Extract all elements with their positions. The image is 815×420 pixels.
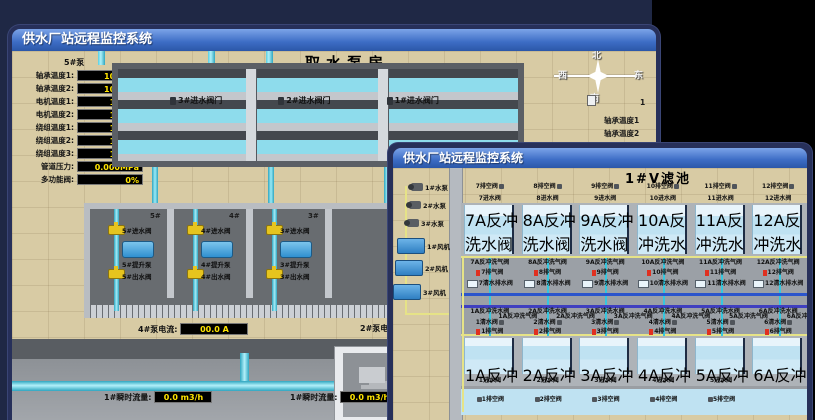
valve-label-text: 7排气阀: [481, 269, 503, 276]
filter-cell[interactable]: 8A反冲洗水阀: [519, 205, 577, 254]
blower-icon: [393, 284, 421, 300]
valve-label-text: 9进水阀: [594, 195, 616, 202]
bottom-filter-tanks: 1A反冲洗水阀 2A反冲洗水阀 3A反冲洗水阀 4A反冲洗水阀 5A反冲洗水阀 …: [461, 338, 807, 374]
flow-label: 1#瞬时流量:: [104, 392, 151, 403]
drain-water-valve[interactable]: 12清水排水阀: [749, 278, 807, 288]
tank-divider: [246, 69, 256, 161]
inlet-gate-valve[interactable]: 2#进水阀门: [278, 95, 330, 106]
filter-cell[interactable]: 11A反冲洗水阀: [692, 205, 750, 254]
alarm-flag-icon: [534, 270, 538, 276]
backwash-air-valve[interactable]: 10A反冲洗气阀: [634, 257, 692, 266]
valve-label-text: 5排空阀: [713, 396, 735, 403]
alarm-flag-icon: [476, 329, 480, 335]
back-window-titlebar[interactable]: 供水厂站远程监控系统: [12, 29, 656, 51]
tank-divider: [378, 69, 388, 161]
drain-valve[interactable]: 9排空阀: [576, 181, 634, 190]
backwash-air-valve[interactable]: 1A反冲洗气阀: [489, 311, 547, 320]
lift-pump-icon[interactable]: [280, 241, 312, 258]
drain-valve[interactable]: 4排空阀: [634, 394, 692, 403]
reading-label: 绕组温度2:: [18, 135, 74, 146]
valve-label-text: 4清水阀: [649, 319, 671, 326]
backwash-air-valve[interactable]: 3A反冲洗气阀: [604, 311, 662, 320]
tank-valve-labels: 3#进水阀门2#进水阀门1#进水阀门: [170, 95, 439, 106]
valve-label-text: 8进水阀: [536, 195, 558, 202]
exhaust-valve[interactable]: 11排气阀: [692, 267, 750, 276]
filter-cell[interactable]: 4A反冲洗水阀: [634, 338, 692, 374]
valve-label-text: 5排气阀: [712, 328, 734, 335]
valve-label-text: 8清水排水阀: [536, 280, 570, 287]
valve-label-text: 4进水阀: [652, 377, 674, 384]
drain-valve[interactable]: 12排空阀: [749, 181, 807, 190]
flow-readout-right: 1#瞬时流量: 0.0 m3/h: [290, 391, 398, 403]
valve-label-text: 2#进水阀门: [286, 95, 330, 106]
bottom-backwash-air-row: 1A反冲洗气阀2A反冲洗气阀3A反冲洗气阀4A反冲洗气阀5A反冲洗气阀6A反冲洗…: [489, 311, 807, 320]
valve-icon: [614, 320, 619, 325]
inlet-valve[interactable]: 3进水阀: [577, 375, 635, 384]
lift-pump-icon[interactable]: [201, 241, 233, 258]
valve-label-text: 7A反冲洗气阀: [470, 259, 509, 266]
inlet-valve[interactable]: 11进水阀: [692, 193, 750, 202]
valve-label-text: 7进水阀: [479, 195, 501, 202]
filter-cell[interactable]: 3A反冲洗水阀: [576, 338, 634, 374]
valve-label-text: 9清水排水阀: [594, 280, 628, 287]
top-inlet-valve-row: 7进水阀8进水阀9进水阀10进水阀11进水阀12进水阀: [461, 193, 807, 202]
pump-label: 1#水泵: [425, 182, 448, 192]
valve-label-text: 2排气阀: [539, 328, 561, 335]
backwash-pump-3[interactable]: 3#水泵: [407, 218, 444, 228]
valve-label-text: 3A反冲洗气阀: [614, 313, 653, 320]
valve-label-text: 3进水阀: [594, 377, 616, 384]
yellow-pipe: [462, 256, 464, 412]
inlet-valve[interactable]: 10进水阀: [634, 193, 692, 202]
exhaust-valve[interactable]: 2排气阀: [519, 326, 577, 335]
reading-value: 0%: [77, 174, 143, 185]
valve-label-text: 5进水阀: [710, 377, 732, 384]
pump-icon: [409, 201, 421, 209]
reading-label: 电机温度2:: [18, 109, 74, 120]
valve-label-text: 9A反冲洗气阀: [586, 259, 625, 266]
blower-icon: [395, 260, 423, 276]
alarm-flag-icon: [592, 270, 596, 276]
flow-readout-left: 1#瞬时流量: 0.0 m3/h: [104, 391, 212, 403]
valve-icon: [614, 184, 619, 189]
exhaust-valve[interactable]: 5排气阀: [692, 326, 750, 335]
valve-label-text: 7排空阀: [476, 183, 498, 190]
cistern-icon: [638, 280, 649, 288]
valve-label-text: 12进水阀: [765, 195, 791, 202]
bay-inlet-label[interactable]: 5#进水阀: [122, 225, 151, 235]
valve-label-text: 9排空阀: [591, 183, 613, 190]
valve-label-text: 10排气阀: [652, 269, 678, 276]
bay-wall: [167, 209, 174, 298]
alarm-flag-icon: [476, 270, 480, 276]
exhaust-valve[interactable]: 4排气阀: [634, 326, 692, 335]
valve-label-text: 10清水排水阀: [650, 280, 688, 287]
valve-icon: [557, 320, 562, 325]
valve-label-text: 12排空阀: [762, 183, 788, 190]
drain-water-valve[interactable]: 11清水排水阀: [692, 278, 750, 288]
blower-label: 1#风机: [427, 241, 450, 251]
valve-label-text: 2进水阀: [537, 377, 559, 384]
inlet-valve[interactable]: 7进水阀: [461, 193, 519, 202]
lift-pump-icon[interactable]: [122, 241, 154, 258]
bay-inlet-label[interactable]: 3#进水阀: [280, 225, 309, 235]
cistern-icon: [582, 280, 593, 288]
blower-1[interactable]: 1#风机: [397, 238, 450, 254]
alarm-flag-icon: [649, 329, 653, 335]
compass-star: [587, 59, 609, 93]
bottom-drain-row: 1排空阀2排空阀3排空阀4排空阀5排空阀: [461, 394, 750, 403]
pipe-stub: [98, 51, 105, 65]
inlet-valve[interactable]: 2进水阀: [519, 375, 577, 384]
inlet-valve[interactable]: 4进水阀: [634, 375, 692, 384]
pump-room-front-wall: [90, 305, 396, 318]
compass-icon: 北 西 南 东: [552, 51, 652, 111]
valve-label-text: 12A反冲洗气阀: [757, 259, 800, 266]
pump-bay-3: 3#进水阀 3#提升泵 3#出水阀: [254, 209, 325, 304]
vertical-pipe: [268, 167, 274, 203]
backwash-water-main: [461, 293, 807, 296]
inlet-valve[interactable]: 5进水阀: [692, 375, 750, 384]
backwash-air-valve[interactable]: 8A反冲洗气阀: [519, 257, 577, 266]
reading-label: 电机温度1:: [18, 96, 74, 107]
top-filter-tanks: 7A反冲洗水阀 8A反冲洗水阀 9A反冲洗水阀 10A反冲洗水阀 11A反冲洗水…: [461, 205, 807, 254]
drain-water-valve[interactable]: 10清水排水阀: [634, 278, 692, 288]
exhaust-valve[interactable]: 12排气阀: [749, 267, 807, 276]
valve-icon: [170, 97, 176, 105]
valve-icon: [557, 184, 562, 189]
valve-label-text: 1排气阀: [481, 328, 503, 335]
front-window: 供水厂站远程监控系统 1#V滤池 1#水泵 2#水泵 3#水泵: [388, 143, 812, 420]
inlet-valve[interactable]: 8进水阀: [519, 193, 577, 202]
top-backwash-air-row: 7A反冲洗气阀8A反冲洗气阀9A反冲洗气阀10A反冲洗气阀11A反冲洗气阀12A…: [461, 257, 807, 266]
backwash-pump-2[interactable]: 2#水泵: [409, 200, 446, 210]
valve-label-text: 11排气阀: [710, 269, 736, 276]
inlet-valve[interactable]: 12进水阀: [749, 193, 807, 202]
valve-label-text: 7清水排水阀: [479, 280, 513, 287]
desktop: 供水厂站远程监控系统 取水泵房 5#泵 轴承温度1: 100.0℃ 轴承温度2:…: [0, 0, 815, 420]
drain-valve[interactable]: 3排空阀: [577, 394, 635, 403]
valve-label-text: 1A反冲洗气阀: [498, 313, 537, 320]
valve-label-text: 1排空阀: [482, 396, 504, 403]
compass-east: 东: [634, 68, 643, 81]
drain-valve[interactable]: 2排空阀: [519, 394, 577, 403]
filter-cell[interactable]: 12A反冲洗水阀: [749, 205, 807, 254]
reading-label: 多功能阀:: [18, 174, 74, 185]
cistern-icon: [524, 280, 535, 288]
pipe-stub: [240, 353, 249, 381]
filter-cell[interactable]: 7A反冲洗水阀: [461, 205, 519, 254]
current-value: 00.0 A: [180, 323, 248, 335]
valve-label-text: 8A反冲洗气阀: [528, 259, 567, 266]
exhaust-valve[interactable]: 7排气阀: [461, 267, 519, 276]
reading-label: 绕组温度1:: [18, 122, 74, 133]
bay-outlet-label[interactable]: 3#出水阀: [280, 271, 309, 281]
top-drainwater-row: 7清水排水阀8清水排水阀9清水排水阀10清水排水阀11清水排水阀12清水排水阀: [461, 278, 807, 288]
valve-label-text: 6清水阀: [764, 319, 786, 326]
drain-valve[interactable]: 11排空阀: [692, 181, 750, 190]
valve-label-text: 2清水阀: [533, 319, 555, 326]
cistern-icon: [753, 280, 764, 288]
alarm-flag-icon: [592, 329, 596, 335]
alarm-flag-icon: [765, 329, 769, 335]
inlet-valve[interactable]: 9进水阀: [576, 193, 634, 202]
bay-wall: [325, 209, 332, 298]
exhaust-valve[interactable]: 6排气阀: [749, 326, 807, 335]
valve-icon: [387, 97, 393, 105]
valve-icon: [499, 320, 504, 325]
valve-icon: [787, 320, 792, 325]
valve-label-text: 3排气阀: [597, 328, 619, 335]
valve-label-text: 4排气阀: [654, 328, 676, 335]
bottom-inlet-row: 1进水阀2进水阀3进水阀4进水阀5进水阀: [461, 375, 750, 384]
drain-valve[interactable]: 10排空阀: [634, 181, 692, 190]
valve-icon: [278, 97, 284, 105]
pump1-panel-header: 1: [640, 98, 645, 107]
compass-north: 北: [592, 51, 601, 61]
valve-label-text: 5清水阀: [706, 319, 728, 326]
valve-label-text: 8排气阀: [539, 269, 561, 276]
filter-cell[interactable]: 9A反冲洗水阀: [576, 205, 634, 254]
valve-label-text: 8排空阀: [533, 183, 555, 190]
valve-label-text: 12清水排水阀: [765, 280, 803, 287]
reading-label: 轴承温度2: [604, 128, 639, 139]
bottom-exhaust-row: 1排气阀2排气阀3排气阀4排气阀5排气阀6排气阀: [461, 326, 807, 335]
valve-icon: [732, 184, 737, 189]
front-window-titlebar[interactable]: 供水厂站远程监控系统: [393, 148, 807, 168]
filter-cell[interactable]: 2A反冲洗水阀: [519, 338, 577, 374]
valve-label-text: 11A反冲洗气阀: [699, 259, 742, 266]
valve-label-text: 2A反冲洗气阀: [556, 313, 595, 320]
backwash-water-valve-label[interactable]: 7A反冲洗水阀: [465, 207, 519, 255]
reading-label: 绕组温度3:: [18, 148, 74, 159]
top-exhaust-row: 7排气阀8排气阀9排气阀10排气阀11排气阀12排气阀: [461, 267, 807, 276]
drain-water-valve[interactable]: 9清水排水阀: [576, 278, 634, 288]
backwash-air-valve[interactable]: 2A反冲洗气阀: [547, 311, 605, 320]
reading-label: 轴承温度1: [604, 115, 639, 126]
reading-label: 轴承温度1:: [18, 70, 74, 81]
drain-water-valve[interactable]: 8清水排水阀: [519, 278, 577, 288]
filter-cell[interactable]: 1A反冲洗水阀: [461, 338, 519, 374]
drain-valve[interactable]: 5排空阀: [692, 394, 750, 403]
drain-valve[interactable]: 8排空阀: [519, 181, 577, 190]
valve-label-text: 6排气阀: [770, 328, 792, 335]
flow-value: 0.0 m3/h: [154, 391, 212, 403]
valve-label-text: 3排空阀: [597, 396, 619, 403]
valve-icon: [499, 184, 504, 189]
bay-inlet-label[interactable]: 4#进水阀: [201, 225, 230, 235]
backwash-air-valve[interactable]: 5A反冲洗气阀: [720, 311, 778, 320]
cistern-icon: [467, 280, 478, 288]
backwash-air-valve[interactable]: 11A反冲洗气阀: [692, 257, 750, 266]
valve-icon: [789, 184, 794, 189]
bay-outlet-label[interactable]: 5#出水阀: [122, 271, 151, 281]
blower-label: 3#风机: [423, 287, 446, 297]
filter-cell[interactable]: 10A反冲洗水阀: [634, 205, 692, 254]
top-drain-valve-row: 7排空阀8排空阀9排空阀10排空阀11排空阀12排空阀: [461, 181, 807, 190]
backwash-pump-1[interactable]: 1#水泵: [411, 182, 448, 192]
drain-water-valve[interactable]: 7清水排水阀: [461, 278, 519, 288]
cistern-icon: [695, 280, 706, 288]
valve-label-text: 3清水阀: [591, 319, 613, 326]
back-window-title: 供水厂站远程监控系统: [22, 32, 152, 47]
pump4-current-readout: 4#泵电流: 00.0 A: [138, 323, 248, 335]
reading-label: 轴承温度2:: [18, 83, 74, 94]
valve-icon: [674, 184, 679, 189]
compass-west: 西: [558, 68, 567, 81]
inlet-gate-valve[interactable]: 1#进水阀门: [387, 95, 439, 106]
v-filter-scene: 1#V滤池 1#水泵 2#水泵 3#水泵 1#风机: [393, 168, 807, 420]
valve-icon: [730, 320, 735, 325]
flow-label: 1#瞬时流量:: [290, 392, 337, 403]
valve-label-text: 2排空阀: [540, 396, 562, 403]
pump-label: 2#水泵: [423, 200, 446, 210]
machine-icon: [359, 367, 385, 383]
bay-pump-label[interactable]: 5#提升泵: [122, 259, 151, 269]
valve-label-text: 6A反冲洗气阀: [787, 313, 807, 320]
valve-label-text: 4A反冲洗气阀: [671, 313, 710, 320]
vertical-pipe: [152, 167, 158, 203]
valve-label-text: 10进水阀: [650, 195, 676, 202]
yellow-pipe: [405, 313, 449, 315]
pump-icon: [407, 219, 419, 227]
valve-label-text: 11清水排水阀: [707, 280, 745, 287]
valve-label-text: 3#进水阀门: [178, 95, 222, 106]
alarm-flag-icon: [707, 329, 711, 335]
inlet-valve[interactable]: 1进水阀: [461, 375, 519, 384]
bay-wall: [246, 209, 253, 298]
backwash-air-valve[interactable]: 9A反冲洗气阀: [576, 257, 634, 266]
exhaust-valve[interactable]: 8排气阀: [519, 267, 577, 276]
valve-label-text: 5A反冲洗气阀: [729, 313, 768, 320]
reading-label: 管道压力:: [18, 161, 74, 172]
valve-label-text: 11排空阀: [704, 183, 730, 190]
filter-cell[interactable]: 5A反冲洗水阀: [692, 338, 750, 374]
drain-valve[interactable]: 7排空阀: [461, 181, 519, 190]
alarm-flag-icon: [763, 270, 767, 276]
reading-row: 多功能阀: 0%: [18, 173, 148, 186]
alarm-flag-icon: [647, 270, 651, 276]
valve-label-text: 4排空阀: [655, 396, 677, 403]
exhaust-valve[interactable]: 9排气阀: [576, 267, 634, 276]
pump-bay-4: 4#进水阀 4#提升泵 4#出水阀: [175, 209, 246, 304]
blower-label: 2#风机: [425, 263, 448, 273]
backwash-water-valve-label[interactable]: 9A反冲洗水阀: [580, 207, 634, 255]
valve-label-text: 1进水阀: [479, 377, 501, 384]
front-window-title: 供水厂站远程监控系统: [403, 151, 523, 165]
blower-3[interactable]: 3#风机: [393, 284, 446, 300]
pump-label: 3#水泵: [421, 218, 444, 228]
blower-2[interactable]: 2#风机: [395, 260, 448, 276]
valve-label-text: 10排空阀: [647, 183, 673, 190]
valve-icon[interactable]: [587, 95, 596, 106]
valve-label-text: 9排气阀: [597, 269, 619, 276]
current-label: 4#泵电流:: [138, 324, 177, 335]
alarm-flag-icon: [705, 270, 709, 276]
valve-label-text: 1#进水阀门: [395, 95, 439, 106]
inlet-gate-valve[interactable]: 3#进水阀门: [170, 95, 222, 106]
exhaust-valve[interactable]: 1排气阀: [461, 326, 519, 335]
alarm-flag-icon: [534, 329, 538, 335]
valve-label-text: 11进水阀: [707, 195, 733, 202]
valve-label-text: 1清水阀: [476, 319, 498, 326]
pump5-panel-header: 5#泵: [64, 57, 84, 68]
backwash-air-valve[interactable]: 7A反冲洗气阀: [461, 257, 519, 266]
backwash-air-valve[interactable]: 6A反冲洗气阀: [777, 311, 807, 320]
valve-icon: [672, 320, 677, 325]
backwash-air-valve[interactable]: 12A反冲洗气阀: [749, 257, 807, 266]
backwash-water-valve-label[interactable]: 8A反冲洗水阀: [523, 207, 577, 255]
pump-icon: [411, 183, 423, 191]
drain-valve[interactable]: 1排空阀: [461, 394, 519, 403]
bay-pump-label[interactable]: 3#提升泵: [280, 259, 309, 269]
blower-icon: [397, 238, 425, 254]
exhaust-valve[interactable]: 3排气阀: [576, 326, 634, 335]
backwash-air-valve[interactable]: 4A反冲洗气阀: [662, 311, 720, 320]
valve-label-text: 10A反冲洗气阀: [641, 259, 684, 266]
bay-outlet-label[interactable]: 4#出水阀: [201, 271, 230, 281]
pump-bay-5: 5#进水阀 5#提升泵 5#出水阀: [96, 209, 167, 304]
bay-pump-label[interactable]: 4#提升泵: [201, 259, 230, 269]
filter-cell[interactable]: 6A反冲洗水阀: [749, 338, 807, 374]
valve-label-text: 12排气阀: [768, 269, 794, 276]
exhaust-valve[interactable]: 10排气阀: [634, 267, 692, 276]
